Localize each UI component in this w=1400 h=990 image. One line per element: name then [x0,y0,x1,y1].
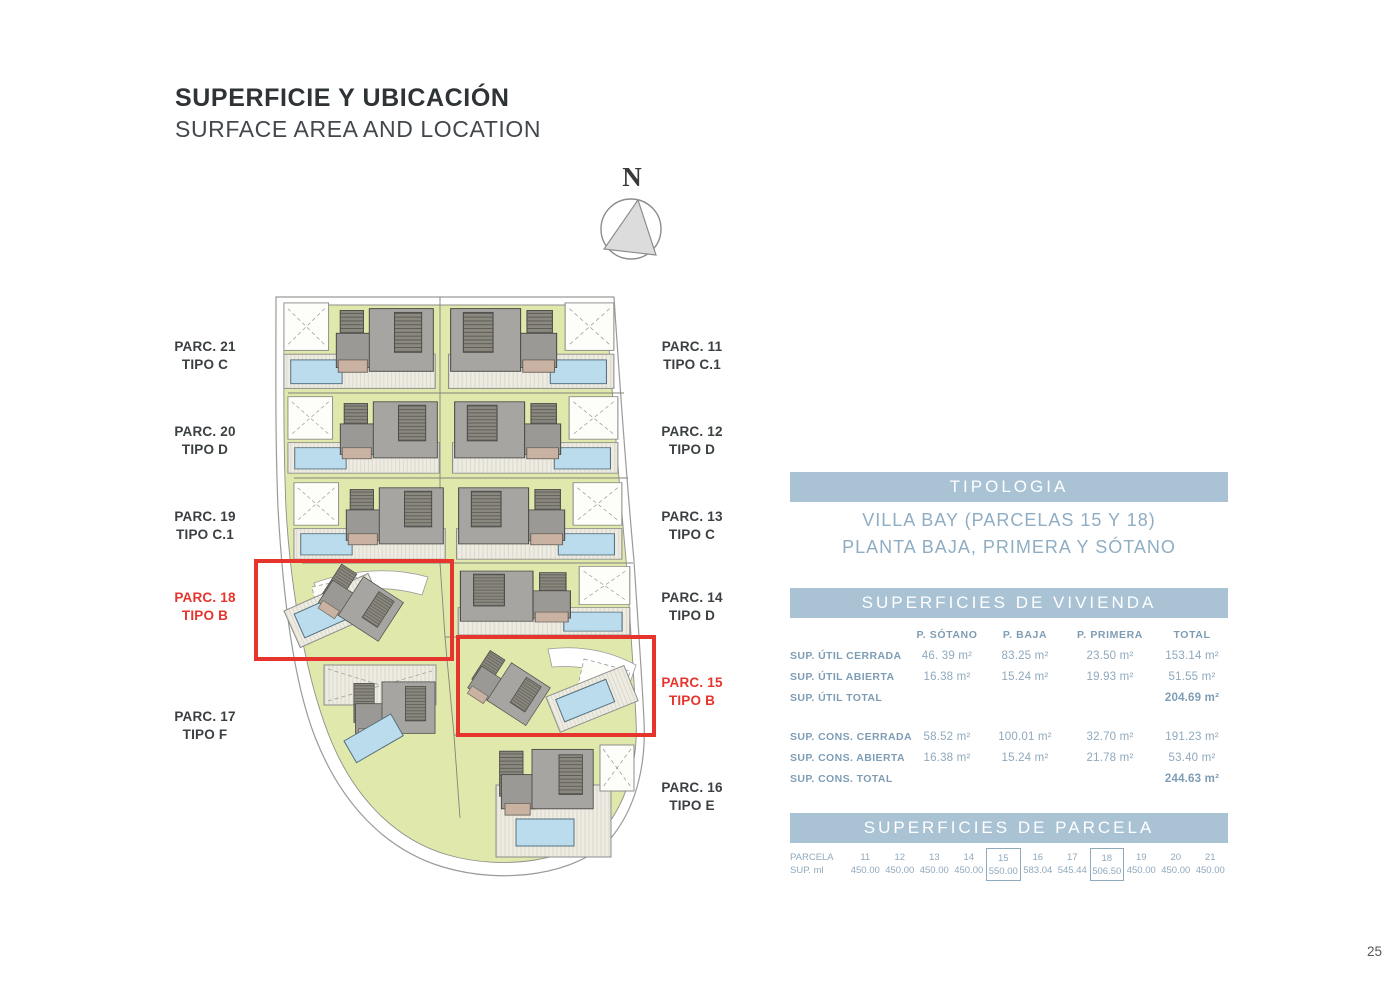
label-parc-21: PARC. 21TIPO C [143,338,267,374]
label-parc-18: PARC. 18TIPO B [143,589,267,625]
label-parc-20: PARC. 20TIPO D [143,423,267,459]
vivienda-header: SUPERFICIES DE VIVIENDA [790,588,1228,618]
table-row: SUP. ÚTIL CERRADA 46. 39 m² 83.25 m² 23.… [790,645,1228,666]
parcela-row-labels: PARCELASUP. ml [790,848,848,881]
parcela-col-12: 12450.00 [883,848,918,881]
table-row: SUP. CONS. TOTAL 244.63 m² [790,768,1228,789]
table-row: SUP. ÚTIL ABIERTA 16.38 m² 15.24 m² 19.9… [790,666,1228,687]
vivienda-column-headers: P. SÓTANO P. BAJA P. PRIMERA TOTAL [790,624,1228,645]
vivienda-table: P. SÓTANO P. BAJA P. PRIMERA TOTAL SUP. … [790,624,1228,789]
compass-icon [597,192,667,264]
page-number: 25 [1352,944,1382,959]
col-baja: P. BAJA [986,629,1064,641]
parcela-table: PARCELASUP. ml 11450.00 12450.00 13450.0… [790,848,1230,881]
table-row: SUP. ÚTIL TOTAL 204.69 m² [790,687,1228,708]
villa-parc-21 [284,303,435,389]
parcela-col-21: 21450.00 [1193,848,1228,881]
parcela-col-14: 14450.00 [952,848,987,881]
villa-parc-12 [453,397,618,474]
tipologia-header: TIPOLOGIA [790,472,1228,502]
page-title: SUPERFICIE Y UBICACIÓN [175,84,510,113]
parcela-col-17: 17545.44 [1055,848,1090,881]
compass: N [597,162,667,269]
brochure-page: SUPERFICIE Y UBICACIÓN SURFACE AREA AND … [0,0,1400,990]
parcela-col-15-highlighted: 15550.00 [986,848,1021,881]
label-parc-16: PARC. 16TIPO E [630,779,754,815]
col-sotano: P. SÓTANO [908,629,986,641]
parcela-col-11: 11450.00 [848,848,883,881]
page-subtitle: SURFACE AREA AND LOCATION [175,116,541,143]
villa-parc-13 [457,483,622,560]
tipologia-description: VILLA BAY (PARCELAS 15 Y 18) PLANTA BAJA… [790,507,1228,561]
villa-parc-20 [288,397,439,474]
parcela-col-19: 19450.00 [1124,848,1159,881]
parcela-col-18-highlighted: 18506.50 [1090,848,1125,881]
parcela-col-13: 13450.00 [917,848,952,881]
label-parc-15: PARC. 15TIPO B [630,674,754,710]
col-primera: P. PRIMERA [1064,629,1156,641]
parcela-col-20: 20450.00 [1159,848,1194,881]
label-parc-19: PARC. 19TIPO C.1 [143,508,267,544]
table-row: SUP. CONS. ABIERTA 16.38 m² 15.24 m² 21.… [790,747,1228,768]
villa-parc-19 [294,483,445,560]
label-parc-14: PARC. 14TIPO D [630,589,754,625]
site-plan [248,293,678,893]
parcela-header: SUPERFICIES DE PARCELA [790,813,1228,843]
label-parc-13: PARC. 13TIPO C [630,508,754,544]
villa-parc-14 [458,567,630,635]
col-total: TOTAL [1156,629,1228,641]
compass-north-label: N [597,162,667,192]
tipologia-line2: PLANTA BAJA, PRIMERA Y SÓTANO [790,534,1228,561]
parcela-col-16: 16583.04 [1021,848,1056,881]
tipologia-line1: VILLA BAY (PARCELAS 15 Y 18) [790,507,1228,534]
label-parc-11: PARC. 11TIPO C.1 [630,338,754,374]
label-parc-12: PARC. 12TIPO D [630,423,754,459]
label-parc-17: PARC. 17TIPO F [143,708,267,744]
villa-parc-11 [449,303,614,389]
table-row: SUP. CONS. CERRADA 58.52 m² 100.01 m² 32… [790,726,1228,747]
